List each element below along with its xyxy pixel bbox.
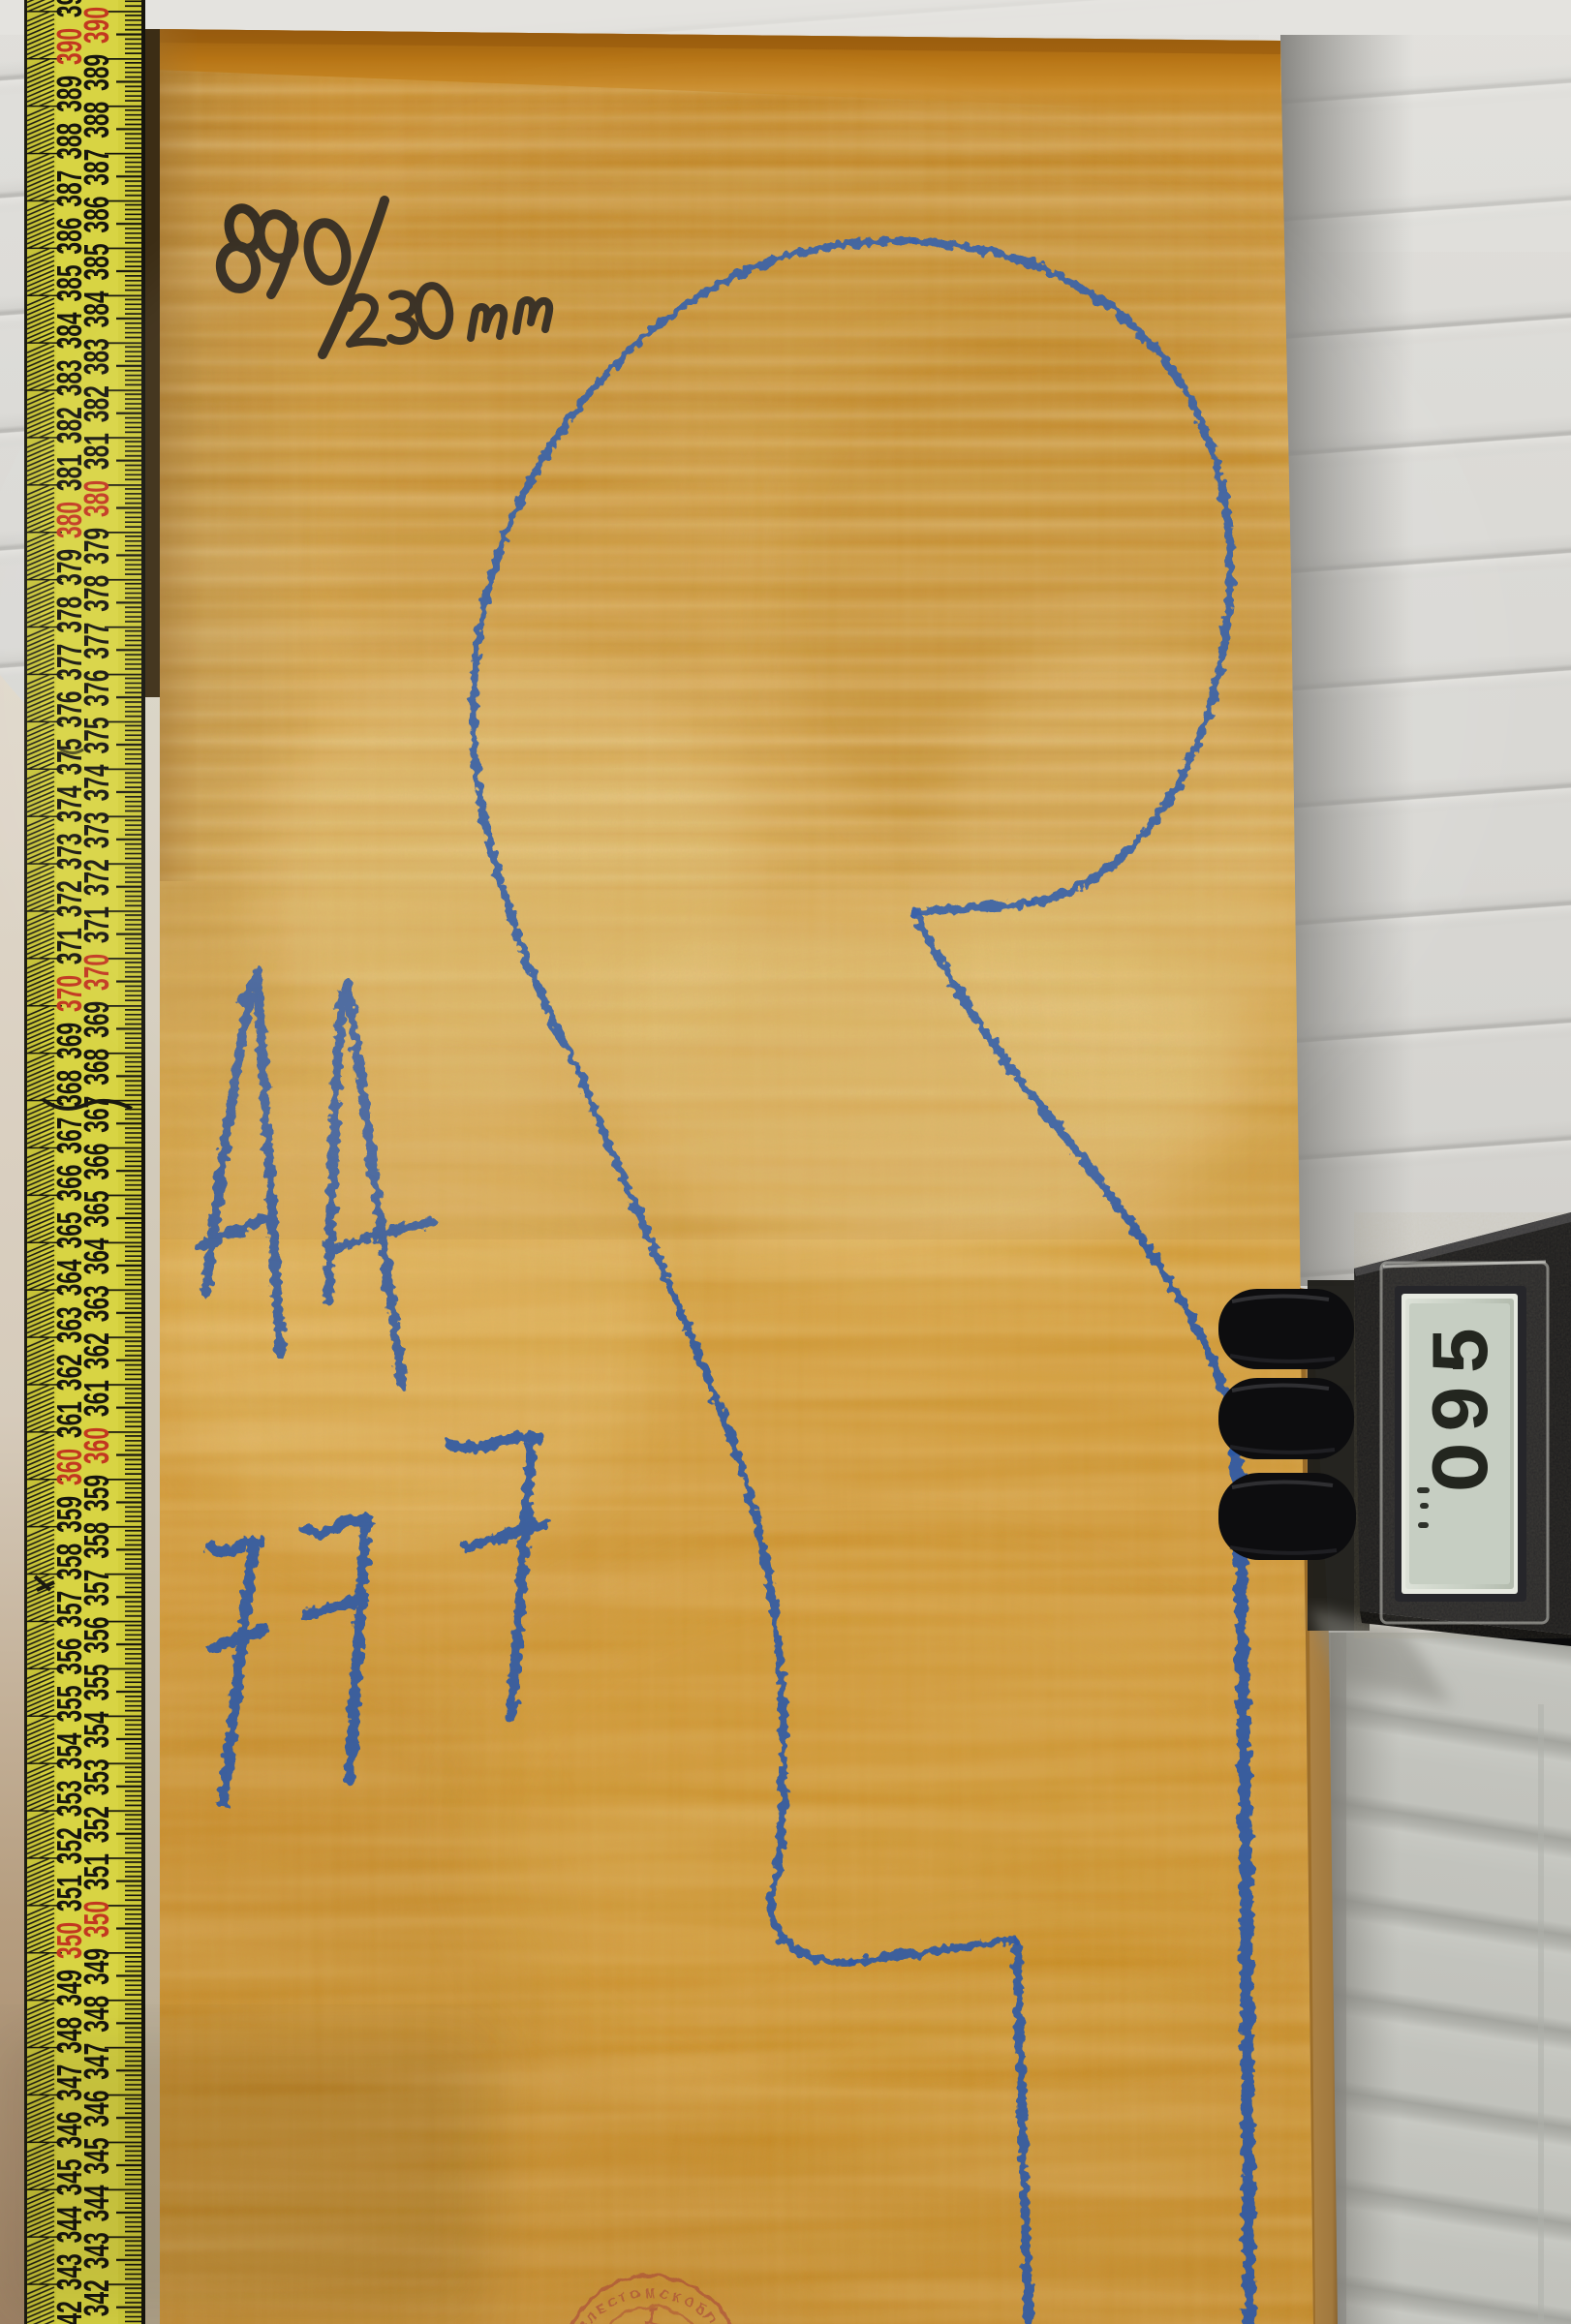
svg-text:356: 356	[77, 1617, 116, 1654]
svg-text:366: 366	[77, 1144, 116, 1180]
svg-text:385: 385	[77, 244, 116, 281]
svg-text:350: 350	[77, 1901, 116, 1938]
svg-text:386: 386	[77, 197, 116, 233]
svg-text:387: 387	[77, 149, 116, 186]
svg-text:358: 358	[77, 1522, 116, 1559]
svg-text:359: 359	[77, 1475, 116, 1512]
svg-text:390: 390	[77, 7, 116, 44]
svg-text:384: 384	[77, 290, 116, 327]
svg-text:388: 388	[77, 102, 116, 138]
svg-text:362: 362	[77, 1332, 116, 1369]
svg-text:365: 365	[77, 1191, 116, 1228]
svg-text:348: 348	[77, 1996, 116, 2033]
svg-text:363: 363	[77, 1285, 116, 1322]
svg-text:351: 351	[77, 1853, 116, 1890]
svg-text:354: 354	[77, 1711, 116, 1748]
svg-text:364: 364	[77, 1238, 116, 1274]
svg-text:357: 357	[77, 1570, 116, 1606]
svg-text:349: 349	[77, 1948, 116, 1985]
svg-text:355: 355	[77, 1665, 116, 1701]
svg-text:368: 368	[77, 1049, 116, 1086]
svg-text:389: 389	[77, 54, 116, 91]
svg-text:361: 361	[77, 1380, 116, 1417]
svg-text:352: 352	[77, 1806, 116, 1843]
svg-text:353: 353	[77, 1758, 116, 1795]
svg-text:360: 360	[77, 1427, 116, 1464]
svg-text:O95: O95	[1420, 1316, 1512, 1491]
